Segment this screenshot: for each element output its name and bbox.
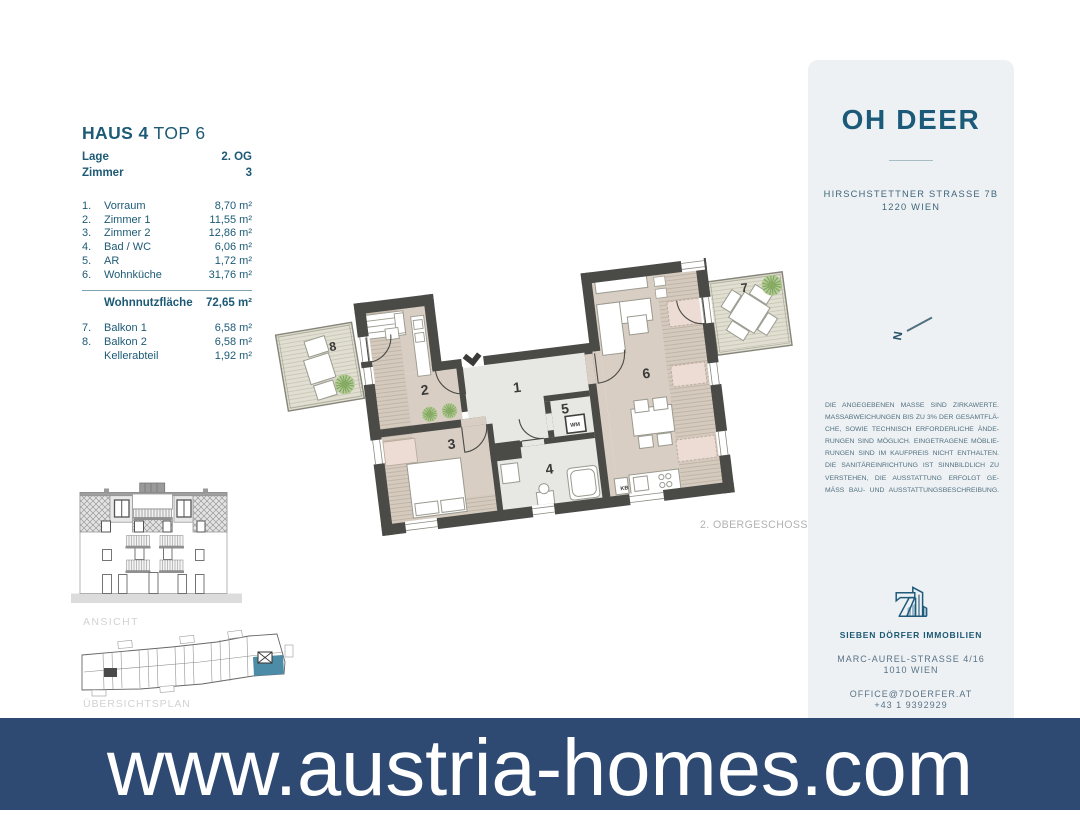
svg-text:KB: KB (620, 485, 629, 492)
svg-text:N: N (890, 330, 905, 341)
svg-text:2. OBERGESCHOSS: 2. OBERGESCHOSS (700, 519, 808, 531)
svg-text:WM: WM (570, 422, 581, 429)
svg-text:ANSICHT: ANSICHT (83, 616, 139, 628)
svg-text:ÜBERSICHTSPLAN: ÜBERSICHTSPLAN (83, 698, 191, 710)
